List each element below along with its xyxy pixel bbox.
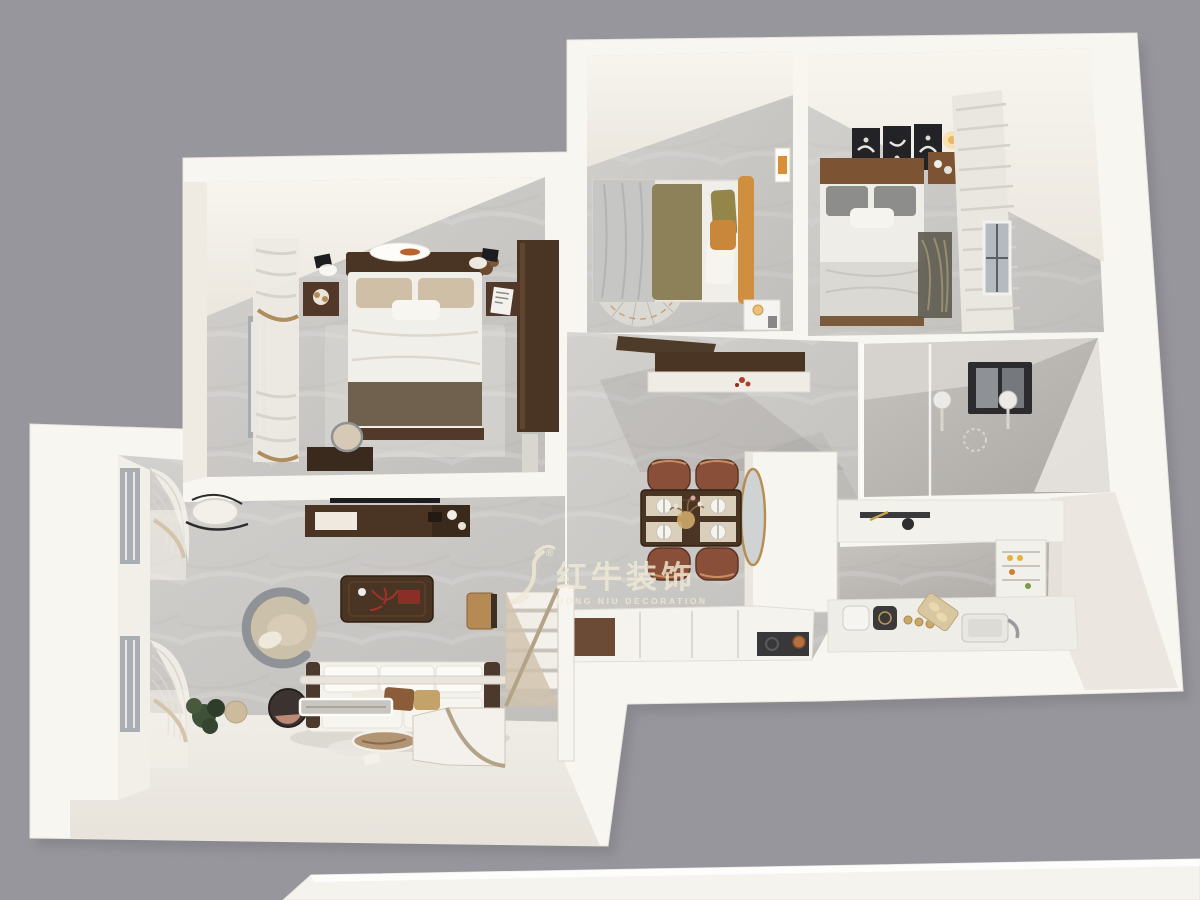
decor-box	[398, 590, 420, 604]
kettle	[902, 518, 914, 530]
living-room	[70, 455, 600, 846]
floorplan-canvas: ® 红牛装饰 HONG NIU DECORATION	[0, 0, 1200, 900]
tv-screen	[330, 498, 440, 503]
bathroom	[863, 338, 1110, 497]
throw-pillow	[414, 690, 440, 710]
oval-mirror	[741, 469, 765, 565]
place-setting	[700, 522, 736, 542]
jar	[904, 616, 912, 624]
stair-side-wall	[558, 585, 574, 761]
bedroom-2-bed	[593, 176, 754, 304]
armchair	[245, 591, 317, 664]
console-tray	[315, 512, 357, 530]
vanity-chair	[332, 423, 362, 451]
sink-basin	[968, 619, 1002, 637]
master-wardrobe-edge	[520, 243, 525, 429]
bathroom-window-glass	[976, 368, 998, 408]
rice-cooker	[843, 606, 869, 630]
cup	[358, 588, 366, 596]
bedroom-3	[808, 48, 1104, 336]
master-bed-blanket	[348, 382, 482, 426]
refrigerator	[996, 540, 1046, 604]
dining-chair	[696, 548, 738, 580]
floorplan-render: ® 红牛装饰 HONG NIU DECORATION	[0, 0, 1200, 900]
entry-console	[648, 352, 810, 392]
master-door-pillar	[522, 434, 538, 472]
bedroom-2	[587, 51, 793, 333]
ceiling-light	[370, 243, 430, 261]
bed-headboard-wood	[820, 158, 924, 184]
nightstand-left	[303, 282, 339, 316]
bedroom-3-bed	[820, 158, 924, 326]
master-curtain	[253, 238, 299, 462]
sheer-curtain	[150, 510, 186, 580]
place-setting	[700, 496, 736, 516]
tv-console	[305, 505, 470, 537]
balcony-window-bottom	[120, 636, 140, 732]
wall-cabinet	[467, 593, 497, 629]
bed-olive-blanket	[652, 184, 706, 300]
table-lamp	[753, 305, 763, 315]
bed-footboard	[820, 316, 924, 326]
console-cabinet	[655, 352, 805, 372]
master-pillow-small	[392, 300, 440, 320]
watermark-subtitle: HONG NIU DECORATION	[557, 596, 708, 606]
air-fryer	[873, 606, 897, 630]
coffee-table	[341, 576, 433, 622]
kitchen-top-counter	[838, 500, 1064, 542]
master-bedroom	[183, 177, 559, 483]
jar	[915, 618, 923, 626]
stair-landing	[413, 708, 505, 766]
bedroom-2-wall-art	[775, 148, 790, 182]
stair-fan-treads	[413, 708, 505, 766]
pillow-orange	[710, 220, 736, 250]
counter-rail	[860, 512, 930, 518]
kitchen-island	[563, 606, 814, 662]
bed-headboard-orange	[738, 176, 754, 304]
sofa-arm	[306, 662, 320, 728]
nightstand-item	[768, 316, 777, 328]
watermark-registered: ®	[546, 548, 554, 559]
master-bed	[346, 252, 484, 440]
bedroom-2-nightstand	[744, 300, 780, 330]
kitchen-bottom-counter	[828, 592, 1078, 652]
place-setting	[646, 522, 682, 542]
pillow-small	[850, 208, 894, 228]
dining-chair	[696, 460, 738, 492]
balcony-window-top	[120, 468, 140, 564]
dining-table	[641, 490, 741, 546]
master-bedroom-left-wall-face	[183, 182, 207, 483]
watermark-title: 红牛装饰	[556, 560, 696, 595]
console-shelf	[648, 372, 810, 392]
sheer-curtain	[150, 690, 188, 768]
master-bed-footboard	[346, 428, 484, 440]
dining-chair	[648, 460, 690, 492]
nightstand-right	[486, 282, 520, 316]
stool	[225, 701, 247, 723]
copper-pot	[793, 636, 805, 648]
